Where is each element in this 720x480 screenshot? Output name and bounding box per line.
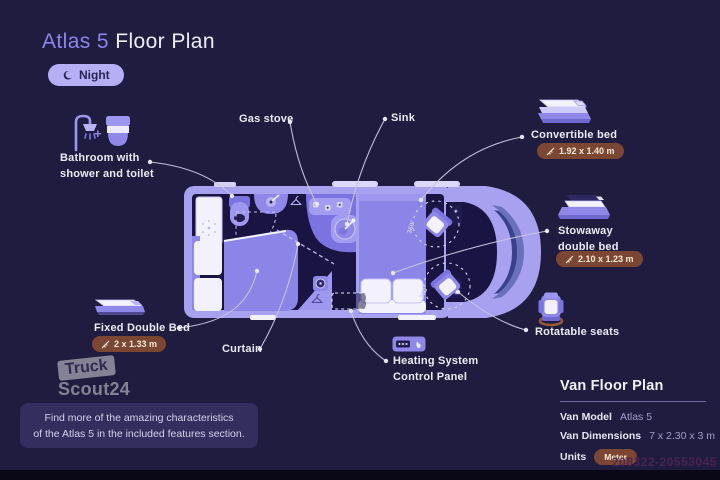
night-mode-label: Night [79, 68, 110, 82]
truckscout24-logo-truck: Truck [57, 355, 115, 381]
truckscout24-logo: Truck Scout24 [58, 358, 130, 400]
plus-sign: + [94, 126, 102, 141]
convertible-bed-dimensions-badge: 1.92 x 1.40 m [537, 143, 624, 159]
page-title-rest: Floor Plan [109, 30, 215, 53]
stowaway-bed-dimensions-badge: 2.10 x 1.23 m [556, 251, 643, 267]
fixed-bed-label: Fixed Double Bed [94, 321, 190, 337]
page-title: Atlas 5 Floor Plan [42, 30, 215, 54]
convertible-bed-icon [532, 94, 592, 128]
truckscout24-logo-scout24: Scout24 [58, 379, 130, 400]
kitchen-sink [331, 215, 359, 243]
footer-note: Find more of the amazing characteristics… [20, 403, 258, 448]
sink-label: Sink [391, 111, 415, 127]
watermark-id: 208322-20553045 [612, 455, 717, 469]
van-plan: 360° 360° [184, 181, 541, 320]
spec-row-van-model: Van Model Atlas 5 [560, 411, 712, 423]
ruler-icon [101, 340, 110, 349]
toilet [229, 196, 250, 226]
floor-plan-infographic: 360° 360° [0, 0, 720, 480]
page-title-model: Atlas 5 [42, 30, 109, 53]
convertible-bed-label: Convertible bed [531, 128, 617, 144]
control-panel-icon [392, 336, 426, 352]
toilet-icon [104, 115, 132, 149]
spec-row-van-dimensions: Van Dimensions 7 x 2.30 x 3 m [560, 430, 712, 442]
rotatable-seats-label: Rotatable seats [535, 325, 619, 341]
night-mode-badge[interactable]: Night [48, 64, 124, 86]
bathroom-label: Bathroom with shower and toilet [60, 151, 154, 182]
heating-label: Heating System Control Panel [393, 354, 478, 385]
curtain-label: Curtain [222, 342, 262, 358]
heating-panel-marker [332, 293, 366, 309]
bottom-letterbox-bar [0, 470, 720, 480]
spec-panel-divider [560, 401, 706, 402]
ruler-icon [565, 255, 574, 264]
spec-panel-title: Van Floor Plan [560, 378, 712, 394]
fixed-double-bed-area [192, 230, 298, 311]
stowaway-bed-icon [556, 193, 610, 225]
gas-stove-label: Gas stove [239, 112, 293, 128]
fixed-bed-icon [92, 296, 146, 320]
swivel-seat-icon [536, 291, 566, 327]
ruler-icon [546, 147, 555, 156]
moon-icon [62, 70, 73, 81]
fixed-bed-dimensions-badge: 2 x 1.33 m [92, 336, 166, 352]
